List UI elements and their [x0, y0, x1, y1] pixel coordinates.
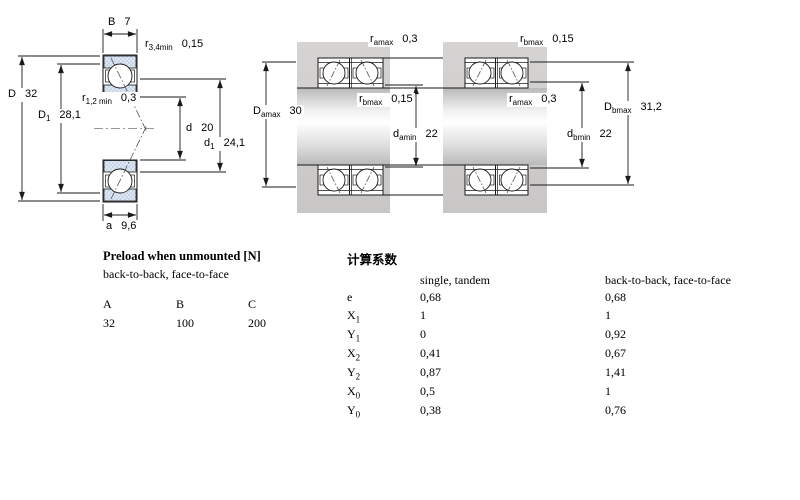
- factor-value-paired: 0,68: [605, 291, 731, 306]
- ball: [469, 62, 491, 84]
- dim-label-d: d20: [184, 122, 215, 136]
- dim-label-r34min: r3,4min0,15: [143, 38, 205, 52]
- factor-row-label: Y2: [347, 366, 420, 381]
- dim-label-rbmax-a: rbmax0,15: [357, 93, 415, 107]
- dim-label-r12min: r1,2 min0,3: [80, 92, 138, 106]
- dim-label-dbmin: dbmin22: [565, 128, 614, 142]
- ball: [501, 62, 523, 84]
- factors-title: 计算系数: [347, 249, 731, 268]
- factor-row-label: Y0: [347, 404, 420, 419]
- factor-row-label: e: [347, 291, 420, 306]
- factor-value-paired: 1,41: [605, 366, 731, 381]
- calculation-factors-table: 计算系数 single, tandem back-to-back, face-t…: [347, 249, 731, 419]
- factor-row-label: X2: [347, 347, 420, 362]
- factor-value-single: 0,5: [420, 385, 605, 400]
- factor-row-label: X0: [347, 385, 420, 400]
- dim-label-B: B7: [106, 16, 132, 30]
- factor-value-single: 0,41: [420, 347, 605, 362]
- dim-label-Damax: Damax30: [251, 105, 304, 119]
- preload-table: Preload when unmounted [N] back-to-back,…: [103, 249, 318, 331]
- dim-label-d1: d124,1: [202, 137, 247, 151]
- preload-subtitle: back-to-back, face-to-face: [103, 267, 318, 282]
- bearing-datasheet-page: B7 r3,4min0,15 D32 D128,1 r1,2 min0,3 d2…: [0, 0, 800, 500]
- preload-value-A: 32: [103, 316, 176, 331]
- dim-label-D: D32: [6, 88, 39, 102]
- ball: [356, 169, 378, 191]
- factor-value-paired: 0,67: [605, 347, 731, 362]
- ball: [356, 62, 378, 84]
- preload-col-header-A: A: [103, 297, 176, 312]
- preload-value-C: 200: [248, 316, 318, 331]
- preload-col-header-C: C: [248, 297, 318, 312]
- dim-label-damin: damin22: [391, 128, 440, 142]
- preload-col-header-B: B: [176, 297, 248, 312]
- single-bearing-section: [94, 55, 154, 202]
- factor-value-paired: 1: [605, 309, 731, 324]
- dim-label-Dbmax: Dbmax31,2: [602, 101, 664, 115]
- preload-grid: A B C 32 100 200: [103, 297, 318, 331]
- ball: [501, 169, 523, 191]
- dim-label-D1: D128,1: [36, 109, 83, 123]
- factor-value-paired: 1: [605, 385, 731, 400]
- ball: [323, 62, 345, 84]
- dim-label-rbmax-b: rbmax0,15: [518, 33, 576, 47]
- dim-label-ramax-b: ramax0,3: [507, 93, 559, 107]
- factors-corner-cell: [347, 274, 420, 287]
- preload-value-B: 100: [176, 316, 248, 331]
- factor-value-paired: 0,92: [605, 328, 731, 343]
- factor-row-label: Y1: [347, 328, 420, 343]
- factor-value-single: 0,87: [420, 366, 605, 381]
- dim-label-a: a9,6: [104, 220, 138, 234]
- preload-title: Preload when unmounted [N]: [103, 249, 318, 264]
- ball: [469, 169, 491, 191]
- dim-label-ramax-a: ramax0,3: [368, 33, 420, 47]
- factors-col1-header: single, tandem: [420, 274, 605, 287]
- factors-grid: single, tandem back-to-back, face-to-fac…: [347, 274, 731, 419]
- factor-row-label: X1: [347, 309, 420, 324]
- ball: [323, 169, 345, 191]
- factor-value-single: 0: [420, 328, 605, 343]
- factor-value-single: 0,68: [420, 291, 605, 306]
- factor-value-single: 0,38: [420, 404, 605, 419]
- factors-col2-header: back-to-back, face-to-face: [605, 274, 731, 287]
- factor-value-single: 1: [420, 309, 605, 324]
- factor-value-paired: 0,76: [605, 404, 731, 419]
